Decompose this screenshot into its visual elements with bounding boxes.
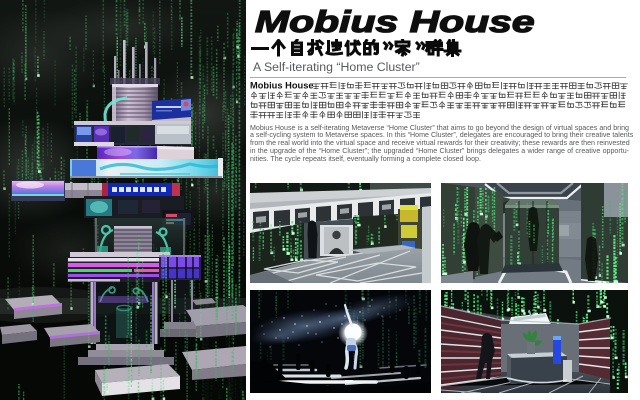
svg-text:Mobius House: Mobius House xyxy=(250,81,314,91)
